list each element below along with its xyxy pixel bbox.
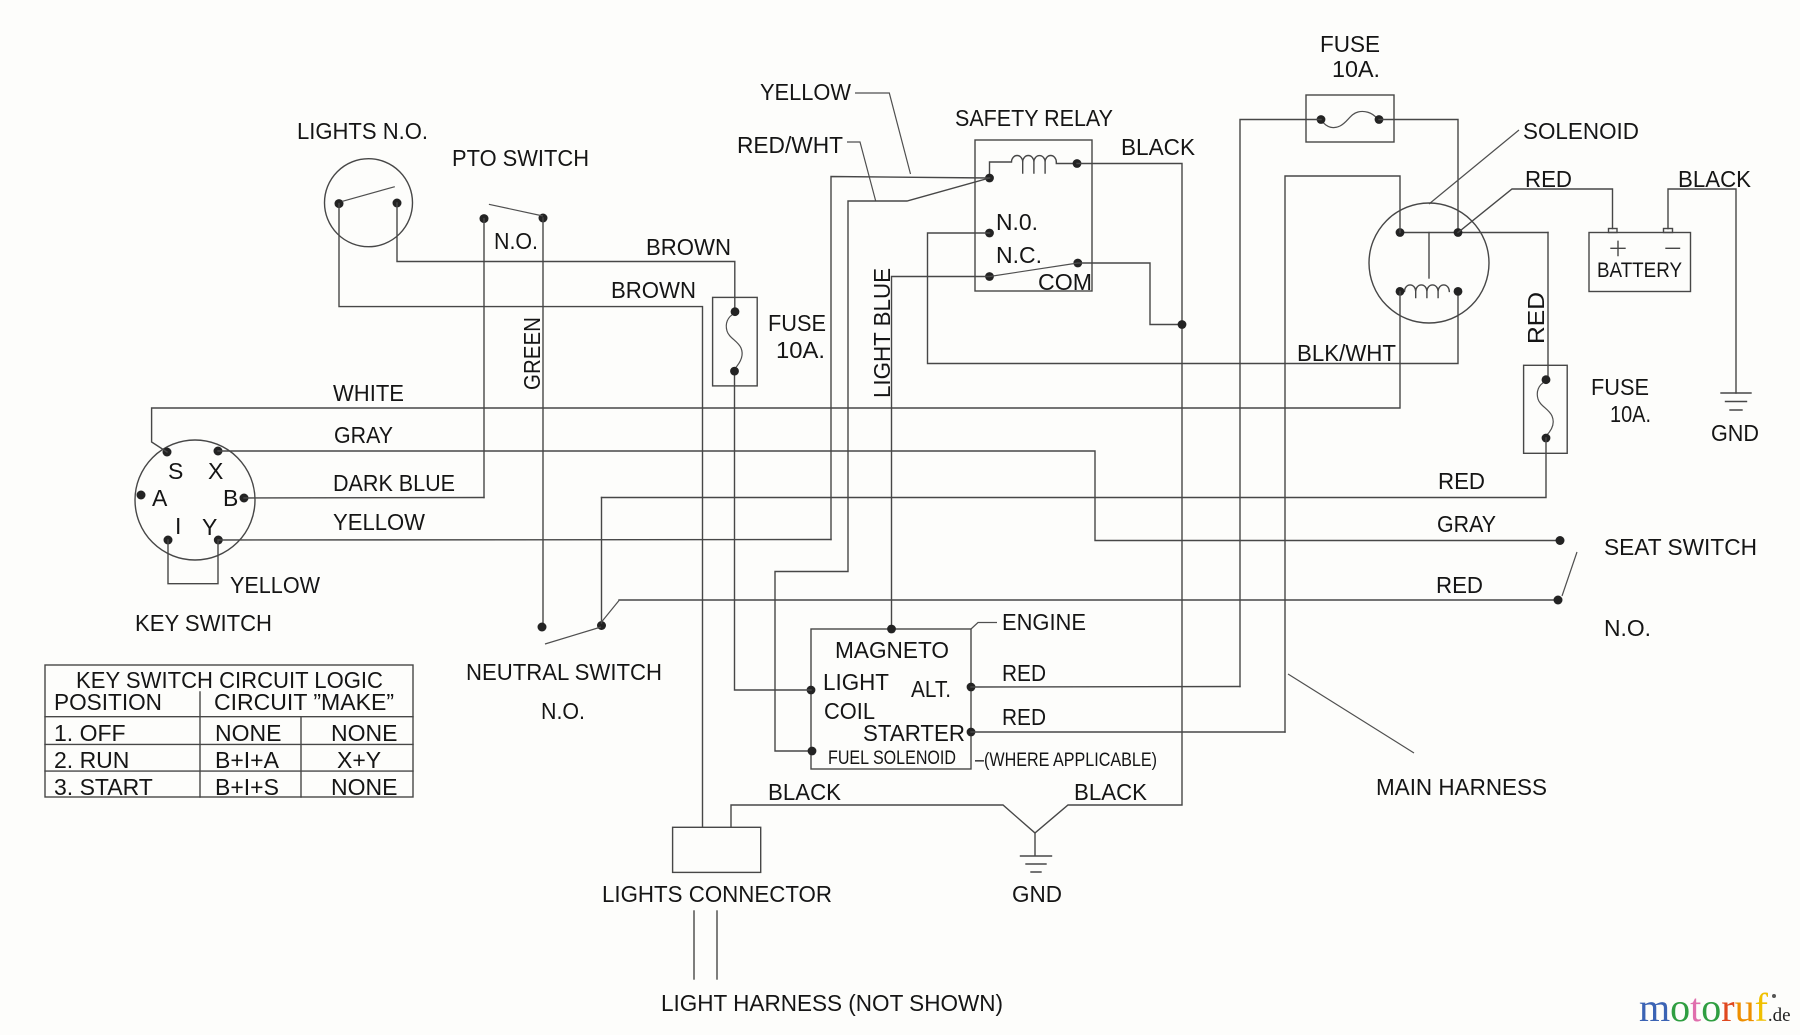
svg-text:MAGNETO: MAGNETO: [835, 637, 949, 663]
svg-text:B+I+S: B+I+S: [215, 774, 279, 800]
svg-text:LIGHTS CONNECTOR: LIGHTS CONNECTOR: [602, 881, 832, 907]
svg-text:LIGHT: LIGHT: [823, 669, 889, 695]
svg-text:BLACK: BLACK: [1678, 166, 1752, 192]
svg-text:ALT.: ALT.: [911, 676, 951, 702]
svg-text:RED: RED: [1002, 660, 1046, 686]
svg-text:B: B: [223, 485, 238, 511]
svg-text:FUSE: FUSE: [1591, 374, 1649, 400]
svg-text:1. OFF: 1. OFF: [54, 720, 126, 746]
svg-text:FUSE: FUSE: [1320, 31, 1380, 57]
svg-text:LIGHT HARNESS (NOT SHOWN): LIGHT HARNESS (NOT SHOWN): [661, 990, 1003, 1016]
svg-text:N.O.: N.O.: [541, 698, 585, 724]
svg-text:BLACK: BLACK: [768, 779, 842, 805]
svg-text:RED: RED: [1002, 704, 1046, 730]
svg-text:ENGINE: ENGINE: [1002, 609, 1086, 635]
svg-text:A: A: [152, 485, 168, 511]
svg-text:SEAT SWITCH: SEAT SWITCH: [1604, 534, 1757, 560]
svg-text:10A.: 10A.: [776, 337, 825, 363]
svg-text:RED/WHT: RED/WHT: [737, 132, 843, 158]
svg-text:10A.: 10A.: [1332, 56, 1380, 82]
svg-text:BROWN: BROWN: [611, 277, 696, 303]
svg-text:BATTERY: BATTERY: [1597, 259, 1682, 282]
svg-text:COM: COM: [1038, 269, 1092, 295]
svg-text:DARK BLUE: DARK BLUE: [333, 470, 455, 496]
svg-text:KEY SWITCH: KEY SWITCH: [135, 610, 272, 636]
svg-text:BLACK: BLACK: [1074, 779, 1148, 805]
svg-text:SOLENOID: SOLENOID: [1523, 118, 1639, 144]
svg-text:POSITION: POSITION: [54, 689, 162, 715]
svg-text:MAIN HARNESS: MAIN HARNESS: [1376, 774, 1547, 800]
svg-text:NONE: NONE: [331, 720, 397, 746]
svg-text:YELLOW: YELLOW: [230, 572, 320, 598]
svg-text:2. RUN: 2. RUN: [54, 747, 129, 773]
svg-text:N.C.: N.C.: [996, 242, 1042, 268]
svg-text:FUSE: FUSE: [768, 310, 826, 336]
svg-text:Y: Y: [202, 514, 217, 540]
svg-text:BROWN: BROWN: [646, 234, 731, 260]
svg-text:BLACK: BLACK: [1121, 134, 1196, 160]
svg-text:–(WHERE APPLICABLE): –(WHERE APPLICABLE): [975, 750, 1157, 771]
svg-text:LIGHTS N.O.: LIGHTS N.O.: [297, 118, 428, 144]
svg-text:FUEL SOLENOID: FUEL SOLENOID: [828, 748, 956, 769]
svg-text:N.O.: N.O.: [494, 228, 538, 254]
svg-text:CIRCUIT ”MAKE”: CIRCUIT ”MAKE”: [214, 689, 394, 715]
svg-text:STARTER: STARTER: [863, 720, 965, 746]
svg-text:GREEN: GREEN: [519, 317, 545, 390]
svg-text:N.0.: N.0.: [996, 209, 1038, 235]
svg-text:I: I: [175, 513, 181, 539]
svg-text:GND: GND: [1711, 420, 1759, 446]
svg-text:NEUTRAL SWITCH: NEUTRAL SWITCH: [466, 659, 662, 685]
svg-text:N.O.: N.O.: [1604, 615, 1651, 641]
svg-text:RED: RED: [1438, 468, 1485, 494]
svg-text:3. START: 3. START: [54, 774, 153, 800]
svg-text:WHITE: WHITE: [333, 380, 404, 406]
svg-text:B+I+A: B+I+A: [215, 747, 280, 773]
svg-text:10A.: 10A.: [1610, 401, 1651, 427]
svg-text:motoruf.de: motoruf.de: [1639, 985, 1791, 1030]
svg-text:LIGHT BLUE: LIGHT BLUE: [869, 268, 895, 398]
svg-text:NONE: NONE: [331, 774, 397, 800]
svg-text:RED: RED: [1436, 572, 1483, 598]
svg-text:YELLOW: YELLOW: [333, 509, 425, 535]
svg-text:GRAY: GRAY: [334, 422, 393, 448]
svg-text:BLK/WHT: BLK/WHT: [1297, 340, 1396, 366]
svg-text:RED: RED: [1525, 166, 1572, 192]
svg-text:X: X: [208, 458, 223, 484]
svg-text:YELLOW: YELLOW: [760, 79, 851, 105]
svg-text:S: S: [168, 458, 183, 484]
svg-text:NONE: NONE: [215, 720, 281, 746]
svg-text:RED: RED: [1523, 292, 1549, 344]
svg-text:X+Y: X+Y: [337, 747, 381, 773]
svg-text:GND: GND: [1012, 881, 1062, 907]
svg-text:SAFETY RELAY: SAFETY RELAY: [955, 105, 1113, 131]
svg-text:GRAY: GRAY: [1437, 511, 1496, 537]
svg-text:PTO SWITCH: PTO SWITCH: [452, 145, 589, 171]
